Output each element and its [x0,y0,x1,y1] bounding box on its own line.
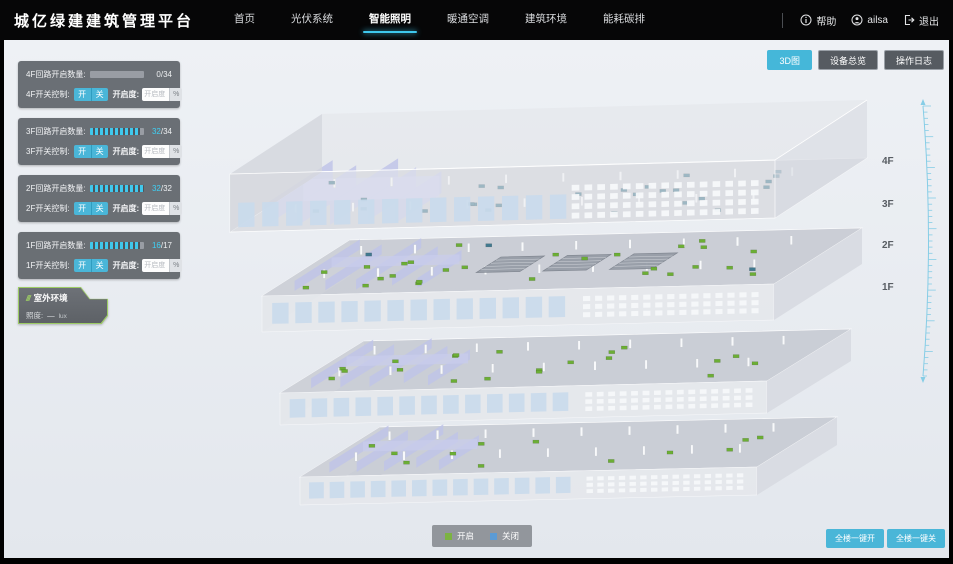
dimming-group: % [142,259,182,272]
nav-pv-system[interactable]: 光伏系统 [289,7,335,33]
switch-segment: 开 关 [74,202,108,215]
user-icon [851,14,863,26]
dimming-group: % [142,145,182,158]
circuit-progress-bar [90,242,144,249]
circuit-count-label: 2F回路开启数量: [26,183,86,194]
floor-panel-1f: 1F回路开启数量: 16/17 1F开关控制: 开 关 开启度: % [18,232,180,279]
logout-button[interactable]: 退出 [903,13,939,28]
switch-on-button[interactable]: 开 [74,202,91,215]
logout-label: 退出 [919,13,939,28]
outdoor-env-panel: /// 室外环境 照度: — lux [18,287,108,324]
legend-off-label: 关闭 [502,530,519,542]
dimming-input[interactable] [142,259,169,272]
outdoor-panel-title: 室外环境 [34,292,68,304]
switch-segment: 开 关 [74,145,108,158]
percent-button[interactable]: % [169,202,182,215]
legend-off-swatch [490,533,497,540]
switch-control-label: 2F开关控制: [26,203,70,214]
dimming-label: 开启度: [113,260,140,271]
dimming-group: % [142,88,182,101]
info-icon [800,14,812,26]
illuminance-unit: lux [59,313,67,320]
floor-label-3f[interactable]: 3F [882,199,906,210]
circuit-progress-bar [90,185,144,192]
percent-button[interactable]: % [169,145,182,158]
switch-on-button[interactable]: 开 [74,88,91,101]
nav-building-env[interactable]: 建筑环境 [523,7,569,33]
illuminance-label: 照度: [26,310,43,321]
operation-log-button[interactable]: 操作日志 [884,50,944,70]
circuit-progress-bar [90,71,144,78]
dimming-group: % [142,202,182,215]
app-window: 城亿绿建建筑管理平台 首页 光伏系统 智能照明 暖通空调 建筑环境 能耗碳排 帮… [0,0,953,564]
app-title: 城亿绿建建筑管理平台 [14,10,194,31]
legend-on-label: 开启 [457,530,474,542]
floor-label-4f[interactable]: 4F [882,156,906,167]
switch-control-label: 4F开关控制: [26,89,70,100]
legend-on-swatch [445,533,452,540]
nav-smart-lighting[interactable]: 智能照明 [367,7,413,33]
nav-hvac[interactable]: 暖通空调 [445,7,491,33]
slash-icon: /// [26,294,30,303]
floor-label-1f[interactable]: 1F [882,282,906,293]
header-actions: 帮助 ailsa 退出 [782,13,939,28]
header-divider [782,13,783,28]
percent-button[interactable]: % [169,259,182,272]
percent-button[interactable]: % [169,88,182,101]
circuit-count-label: 1F回路开启数量: [26,240,86,251]
help-label: 帮助 [816,13,836,28]
circuit-count-label: 4F回路开启数量: [26,69,86,80]
logout-icon [903,14,915,26]
view-toolbar: 3D图 设备总览 操作日志 [767,50,944,70]
illuminance-value: — [47,311,55,320]
circuit-progress-bar [90,128,144,135]
floor-panel-3f: 3F回路开启数量: 32/34 3F开关控制: 开 关 开启度: % [18,118,180,165]
switch-control-label: 3F开关控制: [26,146,70,157]
status-legend: 开启 关闭 [432,525,532,547]
circuit-count-value: 32/34 [152,127,172,136]
nav-home[interactable]: 首页 [232,7,257,33]
view-3d-button[interactable]: 3D图 [767,50,812,70]
dimming-input[interactable] [142,145,169,158]
switch-control-label: 1F开关控制: [26,260,70,271]
floor-label-2f[interactable]: 2F [882,240,906,251]
legend-on: 开启 [445,530,474,542]
top-bar: 城亿绿建建筑管理平台 首页 光伏系统 智能照明 暖通空调 建筑环境 能耗碳排 帮… [0,0,953,40]
switch-off-button[interactable]: 关 [91,259,108,272]
dimming-label: 开启度: [113,146,140,157]
bulk-controls: 全楼一键开 全楼一键关 [826,529,945,548]
nav-energy-carbon[interactable]: 能耗碳排 [601,7,647,33]
floor-panel-2f: 2F回路开启数量: 32/32 2F开关控制: 开 关 开启度: % [18,175,180,222]
circuit-count-label: 3F回路开启数量: [26,126,86,137]
device-overview-button[interactable]: 设备总览 [818,50,878,70]
all-floors-on-button[interactable]: 全楼一键开 [826,529,884,548]
switch-on-button[interactable]: 开 [74,259,91,272]
dimming-input[interactable] [142,202,169,215]
switch-off-button[interactable]: 关 [91,202,108,215]
dimming-label: 开启度: [113,203,140,214]
all-floors-off-button[interactable]: 全楼一键关 [887,529,945,548]
help-button[interactable]: 帮助 [800,13,836,28]
username: ailsa [867,15,888,26]
switch-off-button[interactable]: 关 [91,145,108,158]
switch-segment: 开 关 [74,259,108,272]
dimming-input[interactable] [142,88,169,101]
switch-segment: 开 关 [74,88,108,101]
dimming-label: 开启度: [113,89,140,100]
circuit-count-value: 16/17 [152,241,172,250]
main-viewport: 4F回路开启数量: 0/34 4F开关控制: 开 关 开启度: % [4,40,949,558]
switch-on-button[interactable]: 开 [74,145,91,158]
floor-panels: 4F回路开启数量: 0/34 4F开关控制: 开 关 开启度: % [18,61,180,279]
user-menu[interactable]: ailsa [851,14,888,26]
circuit-count-value: 32/32 [152,184,172,193]
main-nav: 首页 光伏系统 智能照明 暖通空调 建筑环境 能耗碳排 [232,7,647,33]
legend-off: 关闭 [490,530,519,542]
switch-off-button[interactable]: 关 [91,88,108,101]
floor-panel-4f: 4F回路开启数量: 0/34 4F开关控制: 开 关 开启度: % [18,61,180,108]
circuit-count-value: 0/34 [156,70,172,79]
